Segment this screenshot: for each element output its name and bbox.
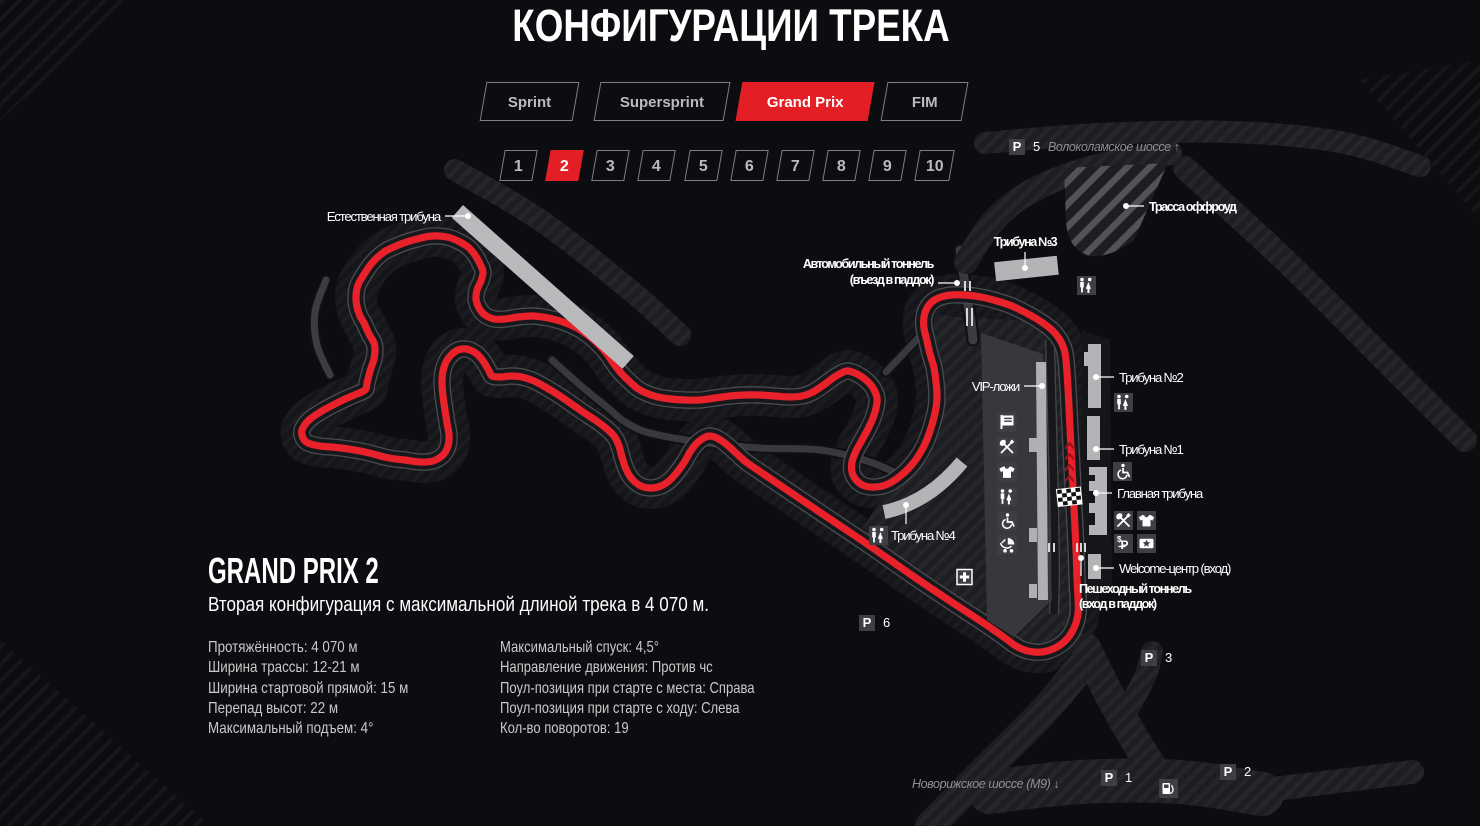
svg-text:P: P — [1224, 764, 1233, 779]
svg-text:Welcome-центр (вход): Welcome-центр (вход) — [1119, 561, 1231, 576]
svg-text:Волоколамское шоссе ↑: Волоколамское шоссе ↑ — [1048, 140, 1180, 154]
svg-text:Пешеходный тоннель: Пешеходный тоннель — [1079, 582, 1192, 596]
svg-text:Трибуна №3: Трибуна №3 — [994, 235, 1058, 249]
svg-text:P: P — [863, 615, 872, 630]
svg-text:6: 6 — [883, 615, 890, 630]
svg-text:5: 5 — [1033, 139, 1040, 154]
svg-text:Новорижское шоссе (М9) ↓: Новорижское шоссе (М9) ↓ — [912, 777, 1059, 791]
svg-text:1: 1 — [1125, 770, 1132, 785]
svg-text:Главная трибуна: Главная трибуна — [1117, 486, 1204, 501]
svg-text:P: P — [1013, 139, 1022, 154]
svg-text:Трасса оффроуд: Трасса оффроуд — [1149, 200, 1237, 214]
svg-text:VIP-ложи: VIP-ложи — [972, 379, 1020, 394]
svg-text:P: P — [1145, 650, 1154, 665]
svg-text:3: 3 — [1165, 650, 1172, 665]
svg-text:(въезд в паддок): (въезд в паддок) — [850, 273, 934, 287]
svg-text:Естественная трибуна: Естественная трибуна — [327, 209, 442, 224]
svg-text:P: P — [1121, 538, 1129, 552]
svg-text:2: 2 — [1244, 764, 1251, 779]
svg-text:(вход в паддок): (вход в паддок) — [1079, 597, 1157, 611]
svg-text:Трибуна №1: Трибуна №1 — [1119, 442, 1183, 457]
svg-text:Трибуна №2: Трибуна №2 — [1119, 370, 1183, 385]
svg-text:Трибуна №4: Трибуна №4 — [891, 528, 955, 543]
svg-text:Автомобильный тоннель: Автомобильный тоннель — [803, 257, 935, 271]
svg-text:P: P — [1105, 770, 1114, 785]
